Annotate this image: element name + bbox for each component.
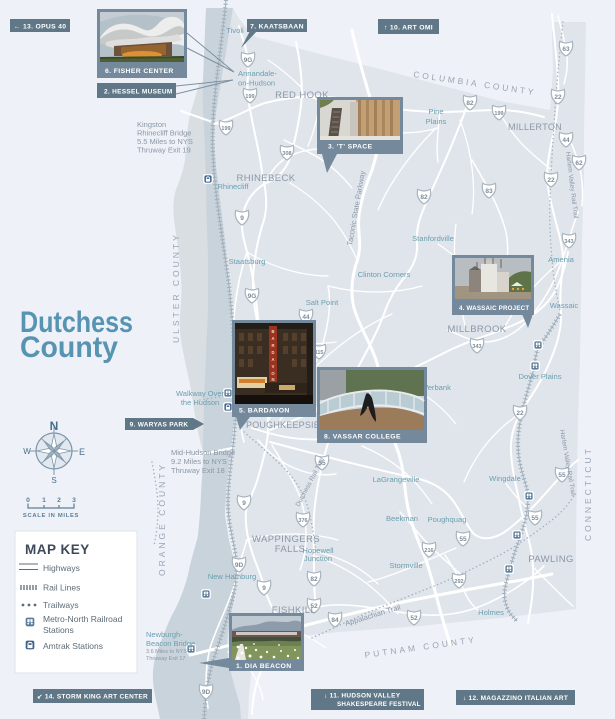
svg-text:R: R bbox=[271, 343, 274, 348]
svg-text:D: D bbox=[271, 350, 274, 355]
svg-text:Stanfordville: Stanfordville bbox=[412, 234, 454, 243]
svg-text:Salt Point: Salt Point bbox=[306, 298, 339, 307]
svg-text:1. DIA BEACON: 1. DIA BEACON bbox=[236, 663, 292, 670]
svg-text:22: 22 bbox=[516, 410, 524, 417]
svg-text:55: 55 bbox=[459, 536, 467, 543]
svg-text:N: N bbox=[50, 419, 59, 433]
svg-text:Wassaic: Wassaic bbox=[550, 301, 579, 310]
svg-text:199: 199 bbox=[494, 111, 503, 117]
svg-text:Thruway Exit 17: Thruway Exit 17 bbox=[146, 656, 185, 662]
svg-text:the Hudson: the Hudson bbox=[181, 398, 219, 407]
svg-text:PAWLING: PAWLING bbox=[528, 554, 574, 565]
svg-text:Plains: Plains bbox=[426, 117, 447, 126]
svg-text:Tivoli: Tivoli bbox=[226, 26, 244, 35]
svg-text:FALLS: FALLS bbox=[275, 544, 306, 555]
svg-text:A: A bbox=[271, 336, 274, 341]
svg-text:MILLERTON: MILLERTON bbox=[508, 122, 562, 132]
svg-text:↓ 11. HUDSON VALLEY: ↓ 11. HUDSON VALLEY bbox=[324, 693, 401, 700]
svg-text:9.2 Miles to NYS: 9.2 Miles to NYS bbox=[171, 457, 227, 466]
svg-text:Thruway Exit 19: Thruway Exit 19 bbox=[137, 146, 191, 155]
svg-text:Amenia: Amenia bbox=[548, 255, 575, 264]
svg-text:22: 22 bbox=[554, 94, 562, 101]
svg-text:44: 44 bbox=[302, 314, 310, 321]
svg-text:83: 83 bbox=[485, 188, 493, 195]
svg-text:MAP KEY: MAP KEY bbox=[25, 542, 90, 557]
svg-text:292: 292 bbox=[454, 579, 463, 585]
svg-text:Verbank: Verbank bbox=[423, 383, 451, 392]
svg-text:44: 44 bbox=[562, 137, 570, 144]
svg-text:SHAKESPEARE FESTIVAL: SHAKESPEARE FESTIVAL bbox=[337, 701, 421, 708]
svg-text:3.6 Miles to NYS: 3.6 Miles to NYS bbox=[146, 649, 187, 655]
svg-text:0: 0 bbox=[26, 497, 30, 504]
svg-text:55: 55 bbox=[531, 515, 539, 522]
svg-text:ULSTER COUNTY: ULSTER COUNTY bbox=[171, 232, 181, 343]
svg-text:ORANGE COUNTY: ORANGE COUNTY bbox=[157, 462, 167, 576]
svg-text:SCALE IN MILES: SCALE IN MILES bbox=[23, 513, 79, 519]
svg-text:9: 9 bbox=[240, 215, 244, 222]
svg-text:9D: 9D bbox=[202, 689, 211, 696]
svg-text:9. WARYAS PARK: 9. WARYAS PARK bbox=[130, 422, 189, 429]
svg-text:308: 308 bbox=[282, 151, 291, 157]
svg-text:County: County bbox=[20, 331, 119, 364]
svg-text:Rail Lines: Rail Lines bbox=[43, 583, 80, 593]
svg-text:22: 22 bbox=[547, 177, 555, 184]
svg-text:7. KAATSBAAN: 7. KAATSBAAN bbox=[250, 24, 304, 31]
svg-text:9D: 9D bbox=[235, 562, 244, 569]
svg-text:9G: 9G bbox=[244, 57, 253, 64]
svg-text:Mid-Hudson Bridge: Mid-Hudson Bridge bbox=[171, 448, 235, 457]
svg-text:52: 52 bbox=[410, 615, 418, 622]
svg-text:Beacon Bridge: Beacon Bridge bbox=[146, 639, 195, 648]
svg-text:Amtrak Stations: Amtrak Stations bbox=[43, 641, 103, 651]
svg-text:A: A bbox=[271, 357, 274, 362]
svg-text:Dover Plains: Dover Plains bbox=[518, 372, 561, 381]
svg-text:2. HESSEL MUSEUM: 2. HESSEL MUSEUM bbox=[104, 89, 173, 96]
svg-text:MILLBROOK: MILLBROOK bbox=[447, 324, 506, 335]
svg-text:62: 62 bbox=[575, 160, 583, 167]
svg-text:6. FISHER CENTER: 6. FISHER CENTER bbox=[105, 68, 174, 75]
svg-text:84: 84 bbox=[331, 617, 339, 624]
svg-text:↙ 14. STORM KING ART CENTER: ↙ 14. STORM KING ART CENTER bbox=[37, 694, 148, 701]
svg-text:← 13. OPUS 40: ← 13. OPUS 40 bbox=[14, 24, 67, 31]
svg-text:216: 216 bbox=[424, 548, 433, 554]
svg-text:8. VASSAR COLLEGE: 8. VASSAR COLLEGE bbox=[324, 434, 401, 441]
svg-text:Walkway Over: Walkway Over bbox=[176, 389, 225, 398]
svg-text:Newburgh-: Newburgh- bbox=[146, 630, 183, 639]
svg-text:↑ 10. ART OMI: ↑ 10. ART OMI bbox=[384, 25, 433, 32]
svg-text:Clinton Corners: Clinton Corners bbox=[358, 270, 411, 279]
svg-text:POUGHKEEPSIE: POUGHKEEPSIE bbox=[246, 420, 320, 430]
svg-text:Thruway Exit 18: Thruway Exit 18 bbox=[171, 466, 225, 475]
svg-text:Junction: Junction bbox=[304, 554, 332, 563]
svg-text:199: 199 bbox=[221, 126, 230, 132]
svg-text:Poughquag: Poughquag bbox=[428, 515, 467, 524]
svg-text:82: 82 bbox=[310, 576, 318, 583]
svg-text:Holmes: Holmes bbox=[478, 608, 504, 617]
svg-text:Beekman: Beekman bbox=[386, 514, 418, 523]
svg-text:S: S bbox=[51, 476, 56, 485]
svg-text:9: 9 bbox=[242, 500, 246, 507]
svg-text:1: 1 bbox=[42, 497, 46, 504]
svg-text:4. WASSAIC PROJECT: 4. WASSAIC PROJECT bbox=[459, 305, 529, 312]
svg-text:Wingdale: Wingdale bbox=[489, 474, 521, 483]
svg-text:9: 9 bbox=[262, 585, 266, 592]
svg-text:3. 'T' SPACE: 3. 'T' SPACE bbox=[328, 144, 373, 151]
svg-text:199: 199 bbox=[245, 94, 254, 100]
svg-text:New Hamburg: New Hamburg bbox=[208, 572, 257, 581]
svg-text:LaGrangeville: LaGrangeville bbox=[373, 475, 420, 484]
svg-text:9G: 9G bbox=[248, 293, 257, 300]
svg-text:Highways: Highways bbox=[43, 563, 80, 573]
svg-text:Annandale-on-Hudson: Annandale-on-Hudson bbox=[238, 69, 277, 88]
svg-text:343: 343 bbox=[564, 239, 573, 245]
svg-text:V: V bbox=[272, 364, 275, 369]
svg-text:B: B bbox=[271, 329, 274, 334]
svg-text:N: N bbox=[271, 377, 274, 382]
svg-text:Metro-North Railroad: Metro-North Railroad bbox=[43, 614, 123, 624]
svg-text:Stormville: Stormville bbox=[389, 561, 422, 570]
svg-text:Pine: Pine bbox=[428, 107, 443, 116]
svg-text:E: E bbox=[79, 447, 85, 457]
svg-text:343: 343 bbox=[472, 344, 481, 350]
svg-text:Trailways: Trailways bbox=[43, 600, 79, 610]
svg-text:CONNECTICUT: CONNECTICUT bbox=[583, 446, 593, 541]
svg-text:Stations: Stations bbox=[43, 625, 74, 635]
svg-text:82: 82 bbox=[466, 100, 474, 107]
svg-text:2: 2 bbox=[57, 497, 61, 504]
svg-text:5. BARDAVON: 5. BARDAVON bbox=[239, 408, 290, 415]
svg-text:376: 376 bbox=[298, 518, 307, 524]
svg-text:RHINEBECK: RHINEBECK bbox=[236, 173, 295, 184]
svg-text:63: 63 bbox=[562, 46, 570, 53]
svg-text:55: 55 bbox=[558, 472, 566, 479]
svg-text:↓ 12. MAGAZZINO ITALIAN ART: ↓ 12. MAGAZZINO ITALIAN ART bbox=[463, 695, 568, 702]
svg-text:3: 3 bbox=[72, 497, 76, 504]
svg-text:W: W bbox=[23, 447, 31, 456]
svg-text:82: 82 bbox=[420, 194, 428, 201]
svg-text:Staatsburg: Staatsburg bbox=[229, 257, 266, 266]
